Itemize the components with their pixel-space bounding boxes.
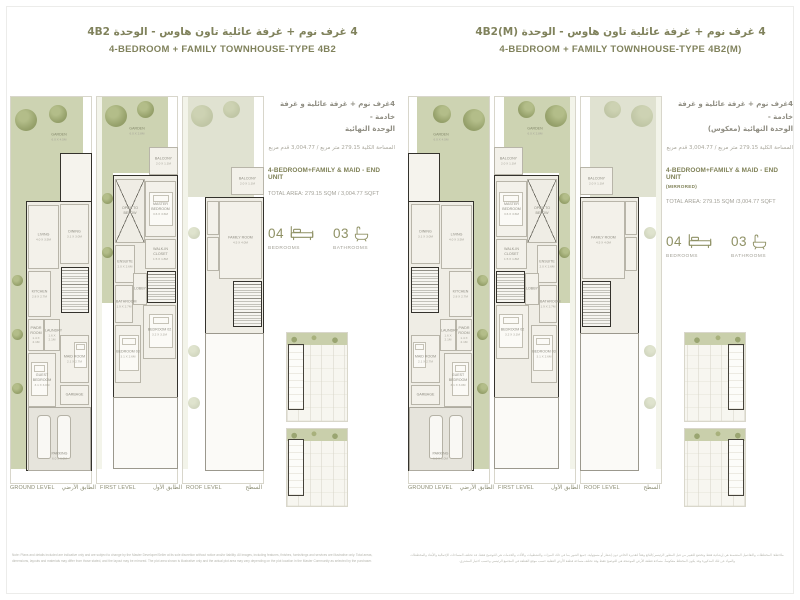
level-label-english: GROUND LEVEL	[10, 485, 55, 491]
floor-plan-drawing: GARDEN6.0 X 4.5M LIVING4.0 X 3.5M DINING…	[11, 97, 91, 483]
total-area-english: TOTAL AREA: 279.15 SQM /3,004.77 SQFT	[666, 199, 793, 205]
key-plan-lower	[286, 428, 348, 507]
side-walkway	[570, 97, 575, 469]
staircase	[582, 281, 611, 327]
room-lobby: LOBBY	[525, 273, 539, 305]
garden-tree	[644, 397, 656, 409]
unit-description-english: 4-BEDROOM+FAMILY & MAID - END UNIT	[666, 167, 793, 181]
level-label-english: GROUND LEVEL	[408, 485, 453, 491]
room-store	[625, 237, 637, 271]
room-garden: GARDEN6.0 X 2.8M	[515, 125, 555, 137]
level-label-first: FIRST LEVEL الطابق الأول	[498, 485, 580, 491]
unit-stats: 04 BEDROOMS 03 BATHROOMS	[268, 225, 395, 251]
unit-description-arabic-line1: 4غرف نوم + غرفة عائلية و غرفة خادمة -	[678, 100, 793, 121]
room-living: LIVING4.0 X 3.5M	[441, 205, 472, 269]
garden-tree	[644, 227, 656, 239]
floor-plan-drawing: BALCONY2.0 X 1.1M FAMILY ROOM4.5 X 4.0M	[183, 97, 263, 483]
void-open-to-below: OPEN TO BELOW	[115, 179, 145, 243]
key-plan-drawing	[685, 429, 745, 506]
parking-area: PARKING6.0 X 6.0M	[409, 407, 472, 471]
room-garden: GARDEN6.0 X 2.8M	[117, 125, 157, 137]
floor-plan-ground-level: GARDEN6.0 X 4.5M LIVING4.0 X 3.5M DINING…	[10, 96, 92, 484]
room-kitchen: KITCHEN2.8 X 2.7M	[28, 271, 51, 317]
room-guest-bedroom: GUEST BEDROOM3.1 X 3.0M	[28, 353, 56, 407]
level-label-ground: GROUND LEVEL الطابق الأرضي	[10, 485, 96, 491]
bedrooms-label: BEDROOMS	[268, 246, 315, 251]
staircase	[496, 271, 525, 303]
key-plan-drawing	[287, 333, 347, 421]
garden-tree	[102, 193, 113, 204]
garden-tree	[477, 275, 488, 286]
key-plan-lower	[684, 428, 746, 507]
staircase	[411, 267, 439, 313]
room-garbage: GARBAGE	[411, 385, 440, 405]
bed-icon	[687, 233, 713, 250]
page-type-4b2: 4 غرف نوم + غرفة عائلية تاون هاوس - الوح…	[0, 0, 400, 600]
page-title-arabic: 4 غرف نوم + غرفة عائلية تاون هاوس - الوح…	[45, 26, 400, 38]
page-type-4b2m: 4 غرف نوم + غرفة عائلية تاون هاوس - الوح…	[398, 0, 798, 600]
room-living: LIVING4.0 X 3.5M	[28, 205, 59, 269]
page-title-arabic: 4 غرف نوم + غرفة عائلية تاون هاوس - الوح…	[443, 26, 798, 38]
garden-tree	[518, 101, 535, 118]
page-title-english: 4-BEDROOM + FAMILY TOWNHOUSE-TYPE 4B2	[45, 44, 400, 55]
page-header: 4 غرف نوم + غرفة عائلية تاون هاوس - الوح…	[0, 26, 400, 55]
bathrooms-stat: 03 BATHROOMS	[731, 233, 767, 259]
side-walkway	[656, 97, 661, 469]
key-plan-drawing	[685, 333, 745, 421]
garden-tree	[188, 397, 200, 409]
key-plan-garden-strip	[287, 333, 347, 345]
unit-info-panel: 4غرف نوم + غرفة عائلية و غرفة خادمة - ال…	[268, 98, 395, 251]
garden-tree	[604, 101, 621, 118]
room-powder: PWDR ROOM1.4 X 2.1M	[28, 319, 44, 351]
bathrooms-count: 03	[731, 234, 747, 249]
garden-tree	[12, 275, 23, 286]
level-label-arabic: السطح	[644, 485, 660, 491]
total-area-arabic: المساحة الكلية 279.15 متر مربع / 3,004.7…	[666, 145, 793, 151]
level-label-arabic: السطح	[246, 485, 262, 491]
unit-info-panel: 4غرف نوم + غرفة عائلية و غرفة خادمة - ال…	[666, 98, 793, 259]
room-balcony: BALCONY2.0 X 1.1M	[231, 167, 264, 195]
garden-tree	[12, 329, 23, 340]
room-laundry: LAUNDRY1.6 X 2.1M	[44, 319, 60, 351]
bedrooms-count: 04	[268, 226, 284, 241]
floor-plan-roof-level: BALCONY2.0 X 1.1M FAMILY ROOM4.5 X 4.0M	[182, 96, 264, 484]
room-bedroom-02: BEDROOM 023.2 X 3.1M	[143, 305, 176, 359]
room-kitchen: KITCHEN2.8 X 2.7M	[449, 271, 472, 317]
roof-terrace	[205, 333, 264, 471]
room-store	[625, 201, 637, 235]
room-garden: GARDEN6.0 X 4.5M	[37, 131, 81, 143]
level-label-english: ROOF LEVEL	[186, 485, 222, 491]
entry-porch	[408, 153, 440, 203]
level-label-english: FIRST LEVEL	[100, 485, 136, 491]
room-bedroom-03: BEDROOM 033.1 X 2.6M	[531, 325, 557, 383]
highlighted-unit	[288, 344, 304, 409]
highlighted-unit	[728, 439, 744, 496]
room-store	[207, 237, 219, 271]
level-label-roof: ROOF LEVEL السطح	[186, 485, 262, 491]
key-plan-drawing	[287, 429, 347, 506]
garden-tree	[477, 329, 488, 340]
floor-plan-drawing: GARDEN6.0 X 2.8M BALCONY2.0 X 1.1M OPEN …	[97, 97, 177, 483]
floor-plan-ground-level: GARDEN6.0 X 4.5M LIVING4.0 X 3.5M DINING…	[408, 96, 490, 484]
bed-icon	[289, 225, 315, 242]
parking-area: PARKING6.0 X 6.0M	[28, 407, 91, 471]
room-maid: MAID ROOM2.1 X 2.7M	[60, 335, 89, 383]
garden-tree	[631, 105, 653, 127]
room-ensuite: ENSUITE2.0 X 2.6M	[115, 245, 135, 283]
staircase	[61, 267, 89, 313]
room-bedroom-02: BEDROOM 023.2 X 3.1M	[496, 305, 529, 359]
room-store	[207, 201, 219, 235]
bathrooms-count: 03	[333, 226, 349, 241]
garden-tree	[15, 109, 37, 131]
disclaimer-english: Note: Plans and details included are ind…	[12, 553, 390, 565]
floor-plan-first-level: GARDEN6.0 X 2.8M BALCONY2.0 X 1.1M OPEN …	[96, 96, 178, 484]
room-walkin-closet: WALK-IN CLOSET1.5 X 1.8M	[496, 239, 527, 269]
bathrooms-label: BATHROOMS	[333, 246, 369, 251]
roof-terrace	[580, 333, 639, 471]
unit-description-english: 4-BEDROOM+FAMILY & MAID - END UNIT	[268, 167, 395, 181]
garden-tree	[545, 105, 567, 127]
room-garbage: GARBAGE	[60, 385, 89, 405]
level-label-first: FIRST LEVEL الطابق الأول	[100, 485, 182, 491]
room-dining: DINING3.1 X 3.0M	[60, 204, 89, 264]
garden-tree	[463, 109, 485, 131]
room-laundry: LAUNDRY1.6 X 2.1M	[440, 319, 456, 351]
level-label-roof: ROOF LEVEL السطح	[584, 485, 660, 491]
level-label-english: ROOF LEVEL	[584, 485, 620, 491]
garden-tree	[433, 105, 451, 123]
room-bathroom: BATHROOM1.9 X 2.7M	[115, 285, 133, 323]
level-label-english: FIRST LEVEL	[498, 485, 534, 491]
room-family: FAMILY ROOM4.5 X 4.0M	[219, 201, 262, 279]
room-master-bedroom: MASTER BEDROOM3.6 X 3.6M	[145, 181, 176, 237]
bedrooms-count: 04	[666, 234, 682, 249]
room-family: FAMILY ROOM4.5 X 4.0M	[582, 201, 625, 279]
room-guest-bedroom: GUEST BEDROOM3.1 X 3.0M	[444, 353, 472, 407]
floor-plan-roof-level: BALCONY2.0 X 1.1M FAMILY ROOM4.5 X 4.0M	[580, 96, 662, 484]
bathrooms-stat: 03 BATHROOMS	[333, 225, 369, 251]
lower-roof-area	[494, 397, 559, 469]
garden-tree	[559, 247, 570, 258]
bedrooms-label: BEDROOMS	[666, 254, 713, 259]
floor-plan-drawing: GARDEN6.0 X 4.5M LIVING4.0 X 3.5M DINING…	[409, 97, 489, 483]
bathtub-icon	[354, 225, 369, 242]
garden-tree	[188, 345, 200, 357]
unit-description-arabic-line2: الوحدة النهائية (معكوس)	[708, 125, 793, 133]
garden-tree	[102, 247, 113, 258]
garden-tree	[191, 105, 213, 127]
room-bedroom-03: BEDROOM 033.1 X 2.6M	[115, 325, 141, 383]
key-plan-upper	[684, 332, 746, 422]
garden-tree	[477, 383, 488, 394]
garden-tree	[105, 105, 127, 127]
page-header: 4 غرف نوم + غرفة عائلية تاون هاوس - الوح…	[398, 26, 798, 55]
garden-tree	[12, 383, 23, 394]
unit-stats: 04 BEDROOMS 03 BATHROOMS	[666, 233, 793, 259]
bedrooms-stat: 04 BEDROOMS	[666, 233, 713, 259]
garden-tree	[188, 227, 200, 239]
garden-tree	[137, 101, 154, 118]
unit-description-arabic: 4غرف نوم + غرفة عائلية و غرفة خادمة - ال…	[666, 98, 793, 136]
total-area-arabic: المساحة الكلية 279.15 متر مربع / 3,004.7…	[268, 145, 395, 151]
garden-tree	[223, 101, 240, 118]
bedrooms-stat: 04 BEDROOMS	[268, 225, 315, 251]
floor-plan-drawing: GARDEN6.0 X 2.8M BALCONY2.0 X 1.1M OPEN …	[495, 97, 575, 483]
level-label-ground: GROUND LEVEL الطابق الأرضي	[408, 485, 494, 491]
unit-description-arabic-line1: 4غرف نوم + غرفة عائلية و غرفة خادمة -	[280, 100, 395, 121]
key-plan-garden-strip	[685, 333, 745, 345]
room-maid: MAID ROOM2.1 X 2.7M	[411, 335, 440, 383]
room-walkin-closet: WALK-IN CLOSET1.5 X 1.8M	[145, 239, 176, 269]
entry-porch	[60, 153, 92, 203]
bathtub-icon	[752, 233, 767, 250]
room-balcony: BALCONY2.0 X 1.1M	[149, 147, 178, 175]
room-powder: PWDR ROOM1.4 X 2.1M	[456, 319, 472, 351]
level-label-arabic: الطابق الأول	[153, 485, 182, 491]
room-garden: GARDEN6.0 X 4.5M	[419, 131, 463, 143]
floor-plan-drawing: BALCONY2.0 X 1.1M FAMILY ROOM4.5 X 4.0M	[581, 97, 661, 483]
lower-roof-area	[113, 397, 178, 469]
key-plan-upper	[286, 332, 348, 422]
level-label-arabic: الطابق الأرضي	[62, 485, 96, 491]
unit-description-arabic-line2: الوحدة النهائية	[345, 125, 395, 133]
total-area-english: TOTAL AREA: 279.15 SQM / 3,004.77 SQFT	[268, 191, 395, 197]
highlighted-unit	[288, 439, 304, 496]
level-label-arabic: الطابق الأرضي	[460, 485, 494, 491]
garden-tree	[49, 105, 67, 123]
floor-plan-first-level: GARDEN6.0 X 2.8M BALCONY2.0 X 1.1M OPEN …	[494, 96, 576, 484]
garden-tree	[559, 193, 570, 204]
room-ensuite: ENSUITE2.0 X 2.6M	[537, 245, 557, 283]
room-balcony: BALCONY2.0 X 1.1M	[494, 147, 523, 175]
level-label-arabic: الطابق الأول	[551, 485, 580, 491]
highlighted-unit	[728, 344, 744, 409]
staircase	[147, 271, 176, 303]
garden-tree	[644, 345, 656, 357]
void-open-to-below: OPEN TO BELOW	[527, 179, 557, 243]
bathrooms-label: BATHROOMS	[731, 254, 767, 259]
room-master-bedroom: MASTER BEDROOM3.6 X 3.6M	[496, 181, 527, 237]
room-bathroom: BATHROOM1.9 X 2.7M	[539, 285, 557, 323]
mirrored-note: (MIRRORED)	[666, 184, 793, 189]
room-dining: DINING3.1 X 3.0M	[411, 204, 440, 264]
room-balcony: BALCONY2.0 X 1.1M	[580, 167, 613, 195]
unit-description-arabic: 4غرف نوم + غرفة عائلية و غرفة خادمة - ال…	[268, 98, 395, 136]
staircase	[233, 281, 262, 327]
disclaimer-arabic: ملاحظة: المخططات والتفاصيل المتضمنة هي إ…	[406, 553, 788, 565]
page-title-english: 4-BEDROOM + FAMILY TOWNHOUSE-TYPE 4B2(M)	[443, 44, 798, 55]
